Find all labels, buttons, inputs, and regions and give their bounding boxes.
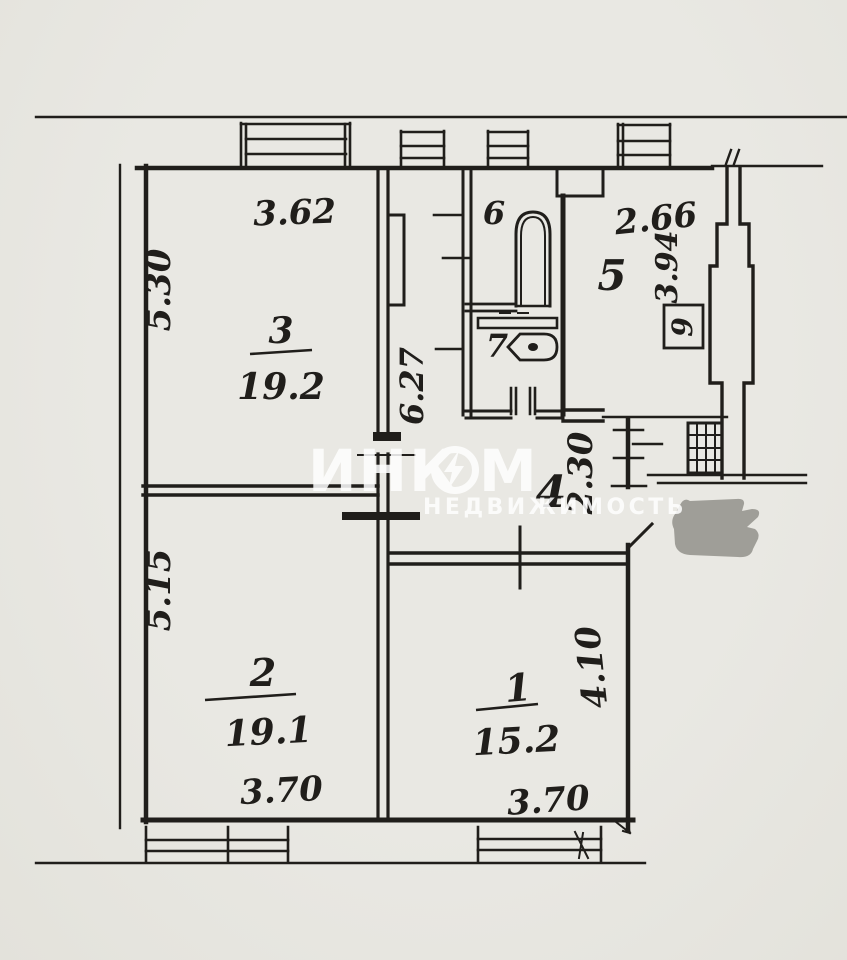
room1-height-label: 4.10 [568, 624, 616, 711]
kitchen-height-label: 3.94 [650, 230, 685, 303]
room2-width-label: 3.70 [239, 769, 324, 813]
vent-grid-icon [688, 423, 722, 473]
floor-plan-canvas: 3.62 5.30 3 19.2 6.27 6 7 2.66 5 3.94 9 … [0, 0, 847, 960]
room3-area: 19.2 [237, 366, 325, 408]
room2-height-label: 5.15 [139, 549, 179, 632]
room3-height-label: 5.30 [139, 248, 179, 331]
room1-width-label: 3.70 [506, 778, 592, 824]
corridor-length-label: 6.27 [393, 347, 431, 425]
room1-area: 15.2 [471, 718, 561, 765]
room2-area: 19.1 [223, 709, 313, 756]
shaft-number: 9 [666, 317, 699, 336]
room2-number: 2 [249, 650, 276, 695]
watermark-subtitle: НЕДВИЖИМОСТЬ [423, 495, 687, 520]
bathroom-number: 6 [483, 194, 505, 232]
scanned-floor-plan-page: 3.62 5.30 3 19.2 6.27 6 7 2.66 5 3.94 9 … [0, 0, 847, 960]
room3-number: 3 [268, 310, 293, 352]
wc-number: 7 [486, 327, 508, 365]
kitchen-number: 5 [597, 251, 626, 300]
room3-width-label: 3.62 [253, 192, 337, 235]
